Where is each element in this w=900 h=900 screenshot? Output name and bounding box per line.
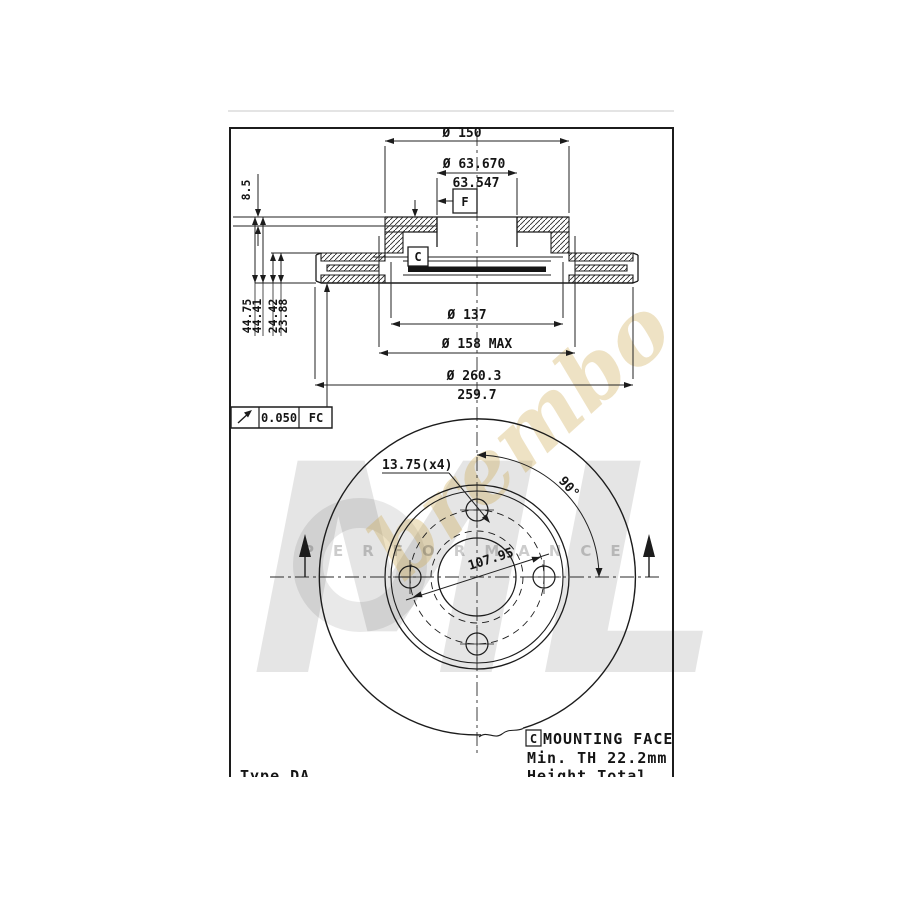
hub-flange-left-section xyxy=(385,217,437,232)
hub-flange-right-section xyxy=(517,217,569,232)
dim-od-upper: Ø 260.3 xyxy=(446,369,502,384)
note-mounting-face: MOUNTING FACE xyxy=(543,730,673,748)
note-datum-c-label: C xyxy=(530,732,537,746)
ring-inner-plate-left xyxy=(321,275,385,283)
vent-vane-right xyxy=(575,265,627,271)
dim-height-lower: 44.41 xyxy=(250,299,264,334)
vent-core-dark-band xyxy=(408,267,546,273)
hat-wall-left-section xyxy=(385,232,403,253)
datum-f-arrow xyxy=(437,198,446,204)
dim-od-lower: 259.7 xyxy=(457,388,496,403)
ring-inner-plate-right xyxy=(569,275,633,283)
dim-bore-upper: Ø 63.670 xyxy=(442,157,506,172)
dim-thickness-lower: 23.88 xyxy=(276,299,290,334)
hat-wall-right-section xyxy=(551,232,569,253)
ring-outer-plate-right xyxy=(569,253,633,261)
dim-d137: Ø 137 xyxy=(446,308,486,323)
datum-c-label: C xyxy=(414,250,421,264)
note-min-thickness: Min. TH 22.2mm xyxy=(527,749,667,767)
datum-f-label: F xyxy=(461,195,468,209)
runout-value: 0.050 xyxy=(261,411,297,425)
flange-detail-arrow xyxy=(412,200,418,217)
brake-disc-technical-drawing-page: ML brembo PERFORMANCE xyxy=(0,0,900,900)
vent-vane-left xyxy=(327,265,379,271)
technical-drawing: ML brembo PERFORMANCE xyxy=(0,0,900,900)
runout-datum: FC xyxy=(309,411,323,425)
dim-d150: Ø 150 xyxy=(441,126,481,141)
dim-offset-8-5: 8.5 xyxy=(239,180,253,201)
dim-d158-max: Ø 158 MAX xyxy=(441,337,513,352)
dim-bore-lower: 63.547 xyxy=(453,176,500,191)
dim-bolt-holes: 13.75(x4) xyxy=(382,458,452,473)
note-clipped-left: Type DA xyxy=(240,767,310,785)
note-clipped-right: Height Total xyxy=(527,767,647,785)
